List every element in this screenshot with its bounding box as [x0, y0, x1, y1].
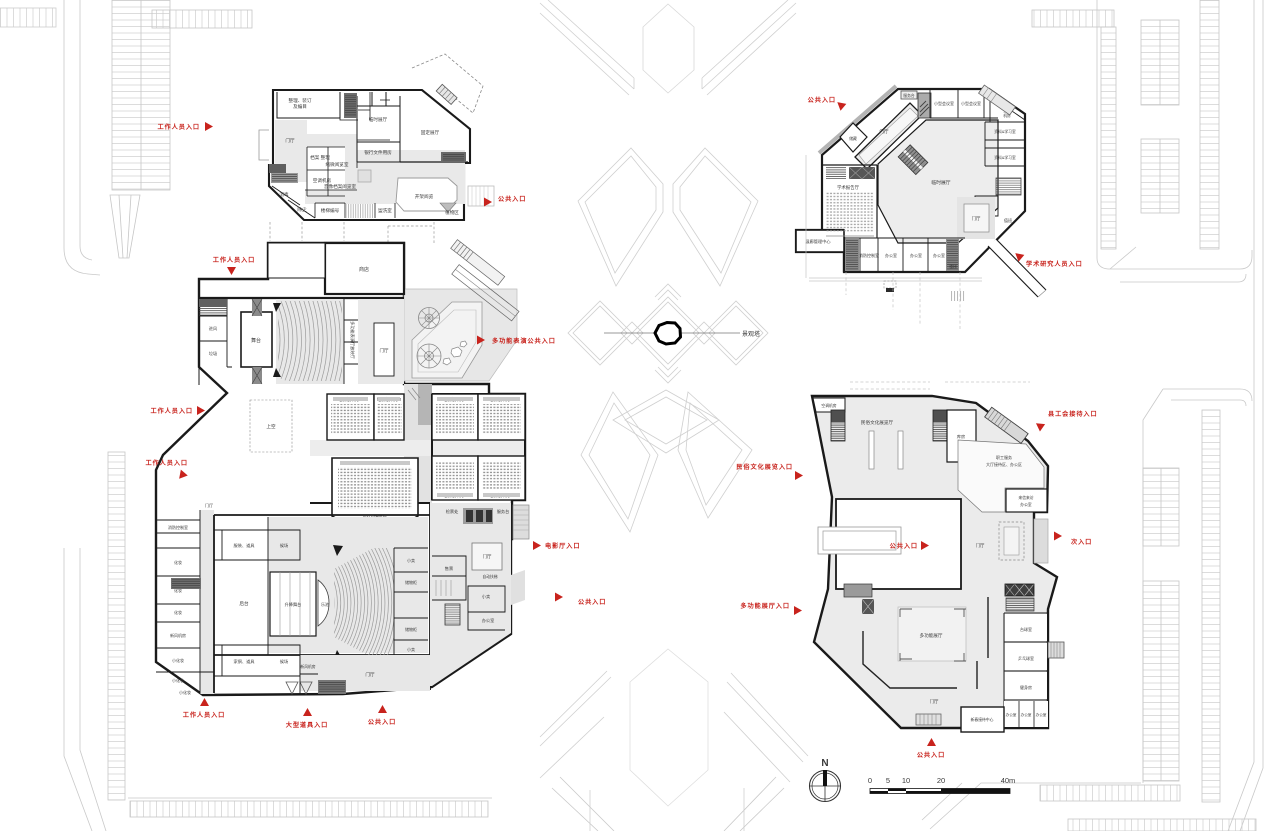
svg-text:门厅: 门厅 — [972, 215, 981, 222]
svg-text:展廊管理中心: 展廊管理中心 — [805, 238, 831, 245]
svg-text:小化妆: 小化妆 — [179, 689, 191, 695]
svg-text:办公室: 办公室 — [1020, 502, 1032, 507]
svg-text:消防控制室: 消防控制室 — [859, 252, 879, 258]
svg-text:新风机房: 新风机房 — [300, 664, 315, 669]
svg-text:10: 10 — [902, 776, 910, 785]
svg-text:自动扶梯: 自动扶梯 — [482, 574, 497, 579]
svg-text:临时展厅: 临时展厅 — [369, 116, 388, 123]
svg-text:售票: 售票 — [445, 565, 453, 572]
svg-text:办公室: 办公室 — [910, 252, 922, 258]
svg-text:门厅: 门厅 — [879, 128, 889, 135]
svg-text:楼梯编号: 楼梯编号 — [321, 207, 340, 214]
svg-text:办公室: 办公室 — [885, 252, 897, 258]
svg-text:门厅: 门厅 — [365, 671, 375, 678]
svg-text:大型道具入口: 大型道具入口 — [286, 721, 329, 729]
svg-text:消防控制室: 消防控制室 — [168, 524, 188, 530]
svg-text:工作人员入口: 工作人员入口 — [157, 123, 200, 131]
svg-text:民俗文化展览厅: 民俗文化展览厅 — [861, 419, 894, 426]
svg-text:学术报告厅: 学术报告厅 — [837, 184, 860, 191]
svg-text:消毒: 消毒 — [279, 191, 289, 198]
svg-text:家俱、道具: 家俱、道具 — [234, 658, 256, 665]
svg-text:工作人员入口: 工作人员入口 — [183, 711, 226, 719]
svg-text:台球室: 台球室 — [1020, 626, 1032, 632]
svg-text:整理、装订: 整理、装订 — [289, 97, 312, 104]
svg-text:工作人员入口: 工作人员入口 — [150, 407, 193, 415]
svg-text:资料&学习室: 资料&学习室 — [994, 129, 1016, 134]
svg-text:化妆: 化妆 — [174, 609, 182, 615]
svg-text:公共入口: 公共入口 — [498, 195, 526, 203]
svg-text:储藏: 储藏 — [849, 136, 857, 141]
svg-text:办公室: 办公室 — [1036, 712, 1047, 717]
svg-text:楼梯: 楼梯 — [949, 264, 957, 269]
svg-text:银行文件用房: 银行文件用房 — [364, 149, 392, 156]
svg-text:N: N — [821, 758, 828, 769]
svg-text:进风: 进风 — [209, 325, 218, 332]
svg-text:服装、道具: 服装、道具 — [234, 542, 256, 549]
svg-text:门厅: 门厅 — [976, 542, 985, 549]
svg-text:商店: 商店 — [359, 266, 369, 273]
svg-text:固定展厅: 固定展厅 — [421, 129, 440, 136]
svg-text:多功能表演公共入口: 多功能表演公共入口 — [492, 337, 556, 345]
svg-text:乒乓球室: 乒乓球室 — [1018, 655, 1034, 661]
svg-text:服务台: 服务台 — [903, 93, 915, 98]
svg-text:门厅: 门厅 — [285, 137, 295, 144]
svg-text:盥洗室: 盥洗室 — [378, 207, 392, 214]
svg-text:空调机房: 空调机房 — [313, 177, 332, 184]
svg-text:植物区: 植物区 — [445, 209, 459, 216]
svg-text:次入口: 次入口 — [1071, 538, 1092, 546]
svg-text:小型会议室: 小型会议室 — [961, 100, 981, 106]
svg-text:服务台: 服务台 — [497, 508, 510, 515]
svg-text:公共入口: 公共入口 — [578, 598, 606, 606]
svg-text:垃圾: 垃圾 — [209, 350, 218, 357]
svg-text:学术研究人员入口: 学术研究人员入口 — [1026, 260, 1083, 268]
svg-text:职工服务: 职工服务 — [996, 454, 1012, 460]
svg-text:资料&学习室: 资料&学习室 — [994, 155, 1016, 160]
svg-text:门厅: 门厅 — [205, 502, 213, 509]
svg-text:临时展厅: 临时展厅 — [931, 179, 950, 186]
svg-text:健身房: 健身房 — [1020, 684, 1032, 690]
svg-text:办公室: 办公室 — [1006, 712, 1017, 717]
svg-text:小卖: 小卖 — [407, 646, 415, 652]
svg-text:候场: 候场 — [280, 658, 288, 665]
svg-text:及编目: 及编目 — [293, 103, 307, 110]
svg-text:0: 0 — [868, 776, 872, 785]
svg-text:候场: 候场 — [280, 542, 288, 549]
svg-text:民俗文化展览入口: 民俗文化展览入口 — [736, 463, 793, 471]
svg-text:检票处: 检票处 — [446, 508, 459, 515]
svg-text:档案 整理: 档案 整理 — [310, 154, 330, 161]
svg-text:化妆: 化妆 — [174, 559, 182, 565]
svg-text:小化妆: 小化妆 — [172, 677, 184, 683]
svg-text:门厅: 门厅 — [380, 347, 389, 354]
svg-text:工作人员入口: 工作人员入口 — [213, 256, 256, 264]
svg-text:舞台: 舞台 — [251, 337, 261, 344]
svg-text:40m: 40m — [1001, 776, 1016, 785]
svg-text:5: 5 — [886, 776, 890, 785]
svg-text:办公室: 办公室 — [933, 252, 945, 258]
svg-text:后台: 后台 — [239, 600, 249, 607]
svg-text:缩微阅览室: 缩微阅览室 — [326, 161, 349, 168]
svg-text:门厅: 门厅 — [483, 553, 492, 560]
svg-text:开架阅览: 开架阅览 — [415, 193, 434, 200]
svg-text:办公室: 办公室 — [1021, 712, 1032, 717]
svg-text:公共入口: 公共入口 — [368, 718, 396, 726]
svg-text:多功能展厅入口: 多功能展厅入口 — [740, 602, 790, 610]
svg-text:值班: 值班 — [1004, 217, 1012, 223]
svg-text:乐池: 乐池 — [321, 601, 329, 607]
svg-text:储物柜: 储物柜 — [405, 579, 417, 585]
svg-text:新春接待中心: 新春接待中心 — [971, 717, 994, 722]
svg-text:小化妆: 小化妆 — [172, 657, 184, 663]
svg-text:上空: 上空 — [266, 423, 276, 429]
svg-text:来信来访: 来信来访 — [1018, 495, 1033, 500]
svg-text:除尘: 除尘 — [297, 206, 307, 212]
svg-text:电影厅入口: 电影厅入口 — [545, 542, 580, 550]
svg-text:小卖: 小卖 — [407, 557, 415, 563]
svg-text:多功能展厅: 多功能展厅 — [920, 632, 943, 639]
svg-text:县工会接待入口: 县工会接待入口 — [1048, 410, 1098, 418]
svg-text:库房: 库房 — [957, 433, 965, 440]
svg-text:小卖: 小卖 — [482, 593, 490, 600]
svg-text:景观塔: 景观塔 — [742, 330, 760, 338]
svg-text:空调机房: 空调机房 — [821, 403, 836, 408]
svg-text:多功能表演厅放映厅: 多功能表演厅放映厅 — [349, 321, 356, 359]
svg-text:音像档案阅览室: 音像档案阅览室 — [324, 183, 357, 190]
svg-text:大厅接待区、办公区: 大厅接待区、办公区 — [986, 461, 1022, 467]
svg-text:新风机房: 新风机房 — [170, 632, 186, 638]
svg-text:办公室: 办公室 — [482, 617, 495, 624]
svg-text:小型会议室: 小型会议室 — [934, 100, 954, 106]
svg-text:公共入口: 公共入口 — [917, 751, 945, 759]
svg-text:门厅: 门厅 — [930, 698, 939, 705]
svg-text:公共入口: 公共入口 — [808, 96, 836, 104]
svg-text:工作人员入口: 工作人员入口 — [145, 459, 188, 467]
svg-text:升降舞台: 升降舞台 — [285, 601, 302, 608]
svg-text:20: 20 — [937, 776, 945, 785]
svg-text:储物柜: 储物柜 — [405, 626, 417, 632]
svg-text:公共入口: 公共入口 — [890, 542, 918, 550]
